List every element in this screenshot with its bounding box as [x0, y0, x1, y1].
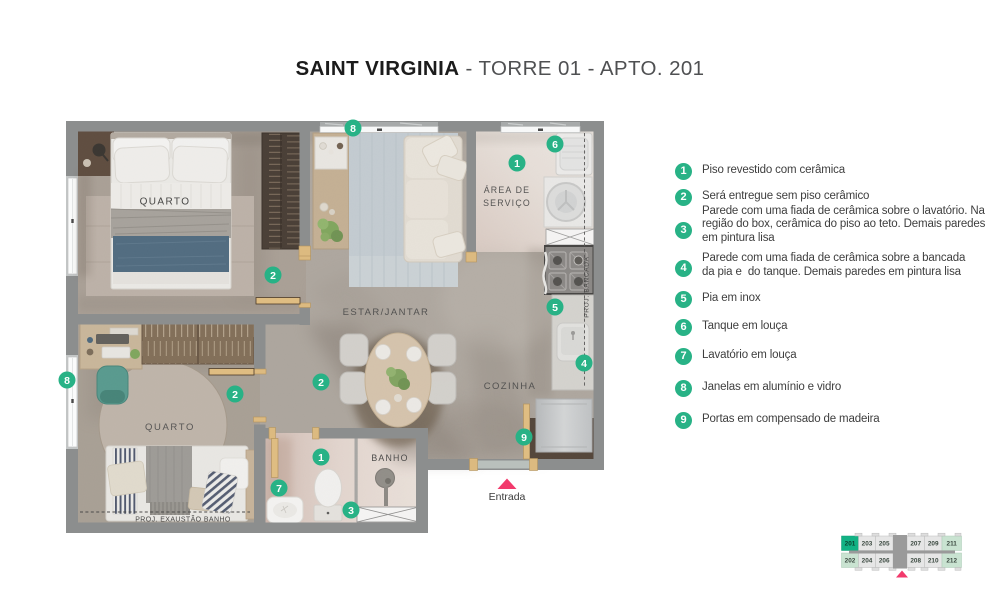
svg-text:8: 8 — [64, 375, 70, 387]
svg-text:5: 5 — [552, 302, 558, 314]
svg-text:6: 6 — [552, 139, 558, 151]
svg-text:210: 210 — [928, 558, 939, 565]
svg-text:207: 207 — [910, 541, 921, 548]
svg-text:205: 205 — [879, 541, 890, 548]
svg-text:208: 208 — [910, 558, 921, 565]
svg-text:4: 4 — [581, 358, 587, 370]
svg-text:201: 201 — [845, 541, 856, 548]
svg-text:2: 2 — [270, 270, 276, 282]
svg-text:212: 212 — [946, 558, 957, 565]
svg-text:2: 2 — [318, 377, 324, 389]
svg-text:204: 204 — [862, 558, 873, 565]
svg-text:203: 203 — [862, 541, 873, 548]
svg-text:3: 3 — [348, 505, 354, 517]
svg-text:7: 7 — [276, 483, 282, 495]
svg-text:9: 9 — [521, 432, 527, 444]
svg-text:209: 209 — [928, 541, 939, 548]
svg-text:Entrada: Entrada — [489, 491, 526, 503]
svg-text:211: 211 — [947, 541, 958, 548]
svg-text:8: 8 — [350, 123, 356, 135]
svg-text:202: 202 — [845, 558, 856, 565]
svg-text:1: 1 — [514, 158, 520, 170]
svg-text:206: 206 — [879, 558, 890, 565]
svg-text:2: 2 — [232, 389, 238, 401]
svg-text:1: 1 — [318, 452, 324, 464]
